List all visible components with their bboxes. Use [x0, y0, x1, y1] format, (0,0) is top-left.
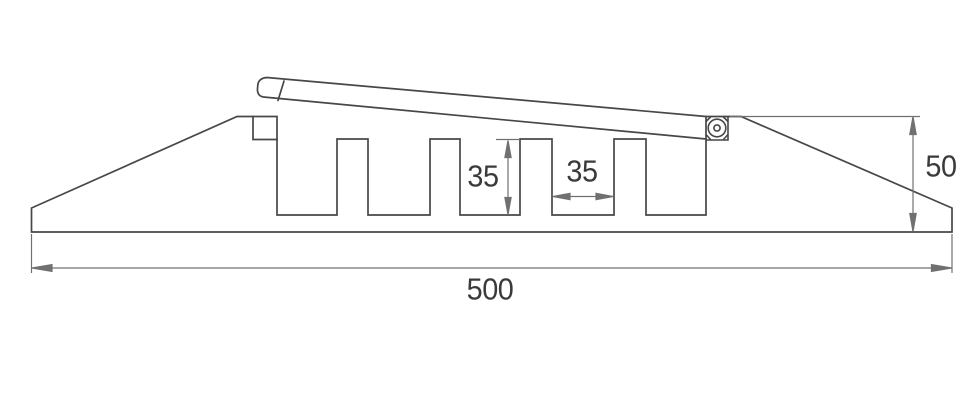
dim-overall-height — [730, 117, 920, 232]
technical-drawing-canvas: 500 50 35 35 — [0, 0, 976, 404]
hinge-pin — [706, 117, 728, 141]
dim-label-overall-width: 500 — [467, 274, 514, 305]
arrowhead-down — [505, 198, 511, 215]
arrowhead-up — [910, 117, 916, 135]
dim-label-slot-width: 35 — [566, 156, 597, 187]
arrowhead-left — [32, 265, 52, 272]
dim-label-slot-depth: 35 — [467, 161, 498, 192]
dim-slot-depth — [496, 140, 520, 215]
arrowhead-left — [553, 193, 570, 199]
arrowhead-right — [596, 193, 613, 199]
dim-overall-width — [32, 234, 953, 273]
hinge-pin-outer-circle — [708, 119, 726, 137]
dim-label-overall-height: 50 — [925, 151, 956, 182]
arrowhead-right — [932, 265, 952, 272]
lid-end-seam — [278, 81, 284, 101]
cable-ramp-cross-section-drawing — [0, 0, 976, 404]
hinged-lid — [257, 78, 706, 140]
lid-outline — [257, 78, 706, 140]
arrowhead-down — [910, 214, 916, 232]
hinge-pin-hole — [714, 125, 720, 131]
dim-slot-width — [553, 193, 613, 199]
lid-catch-pocket — [253, 117, 277, 140]
arrowhead-up — [505, 141, 511, 158]
